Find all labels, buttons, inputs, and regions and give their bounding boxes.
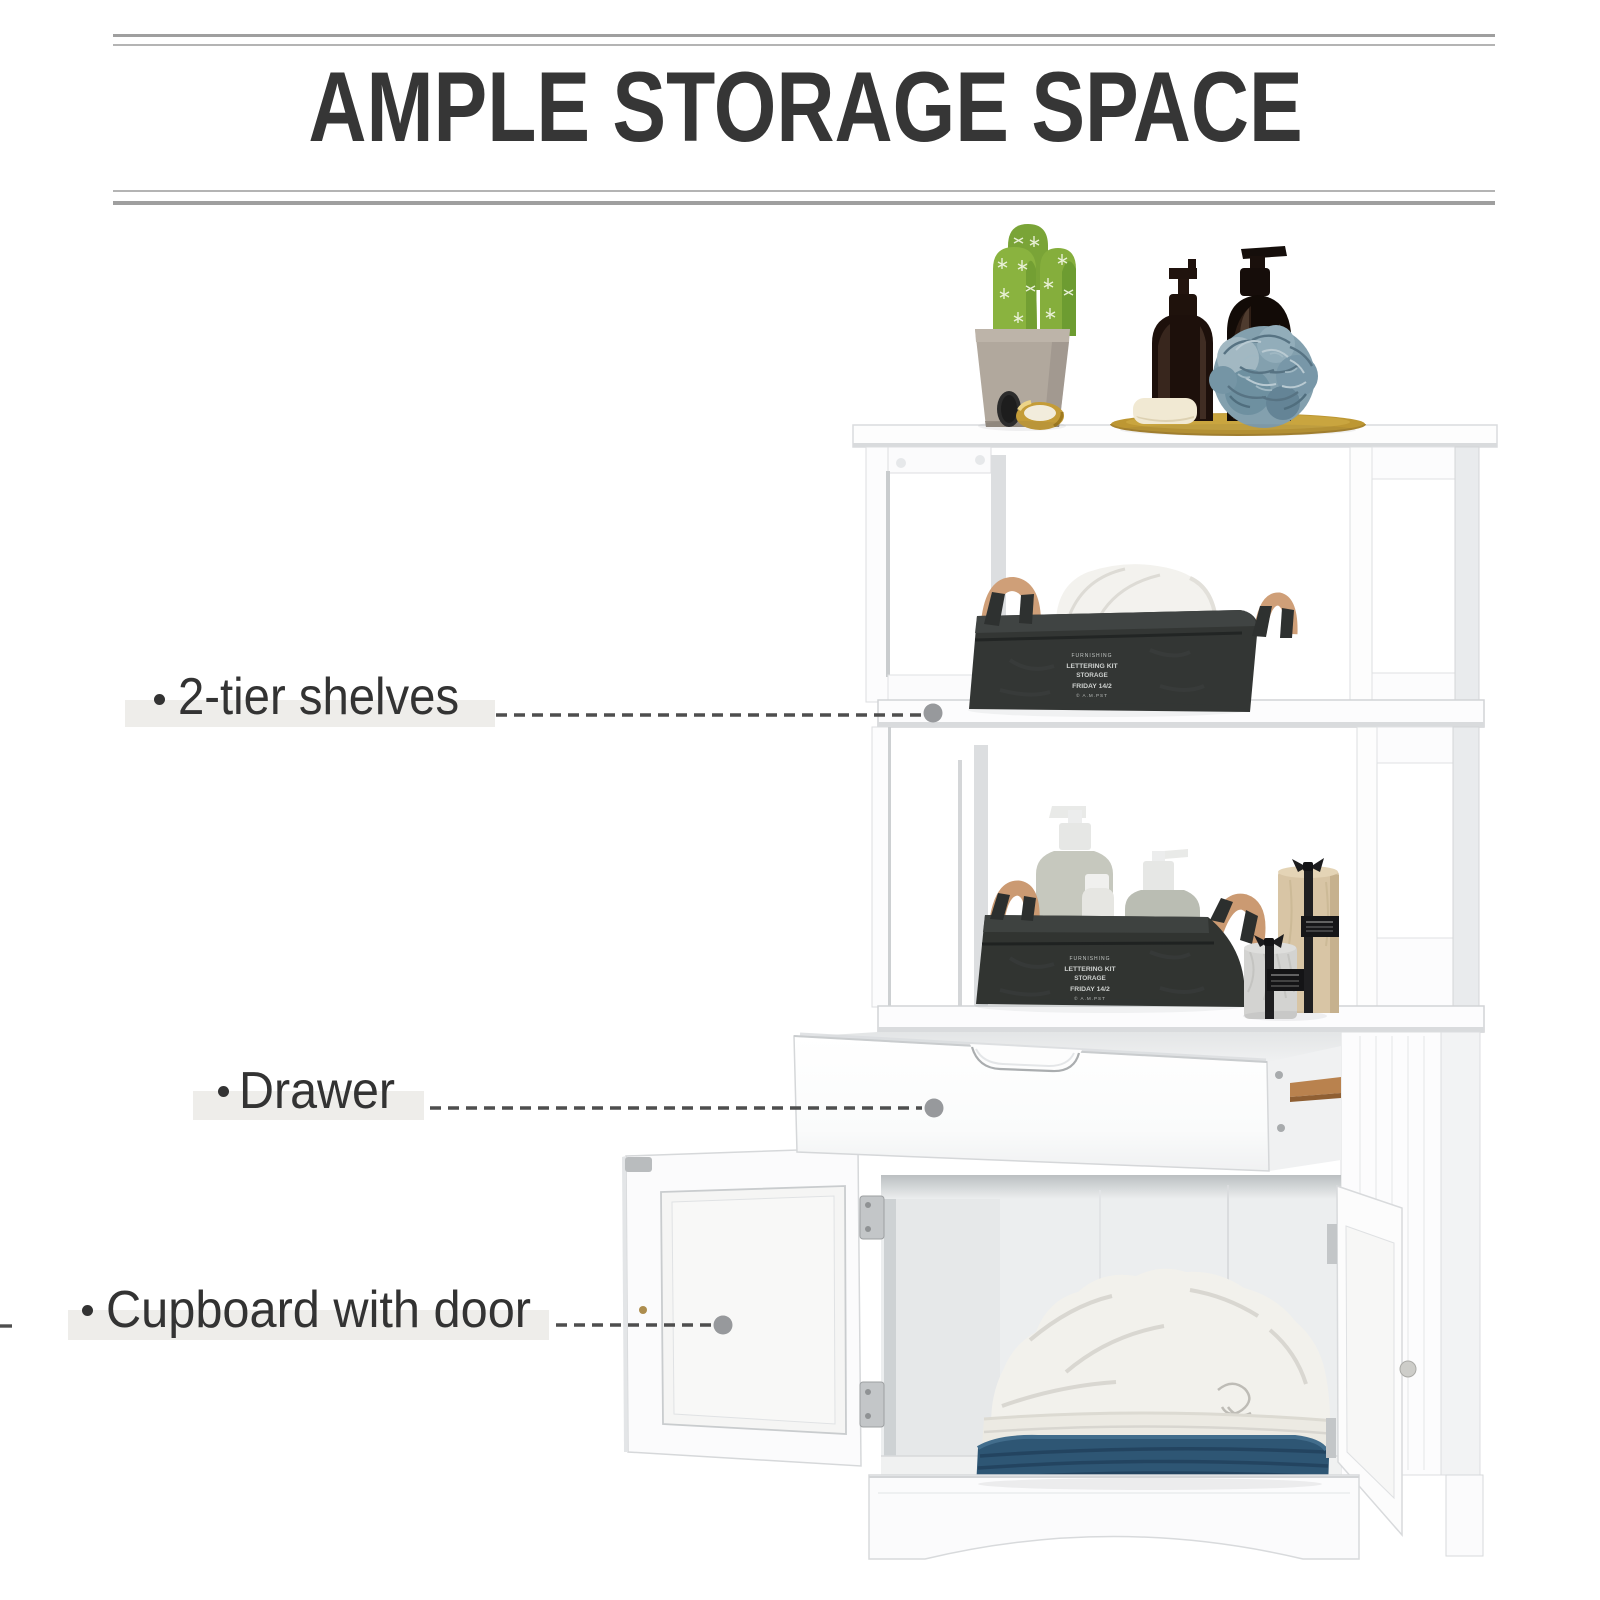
svg-text:LETTERING KIT: LETTERING KIT: [1064, 966, 1116, 973]
svg-text:STORAGE: STORAGE: [1076, 672, 1108, 679]
svg-text:LETTERING KIT: LETTERING KIT: [1066, 663, 1118, 670]
svg-text:FRIDAY 14/2: FRIDAY 14/2: [1070, 986, 1110, 993]
svg-text:FRIDAY 14/2: FRIDAY 14/2: [1072, 683, 1112, 690]
svg-text:STORAGE: STORAGE: [1074, 975, 1106, 982]
svg-text:© A.M.PST: © A.M.PST: [1076, 692, 1108, 698]
svg-text:FURNISHING: FURNISHING: [1069, 956, 1110, 962]
svg-text:FURNISHING: FURNISHING: [1071, 653, 1112, 659]
